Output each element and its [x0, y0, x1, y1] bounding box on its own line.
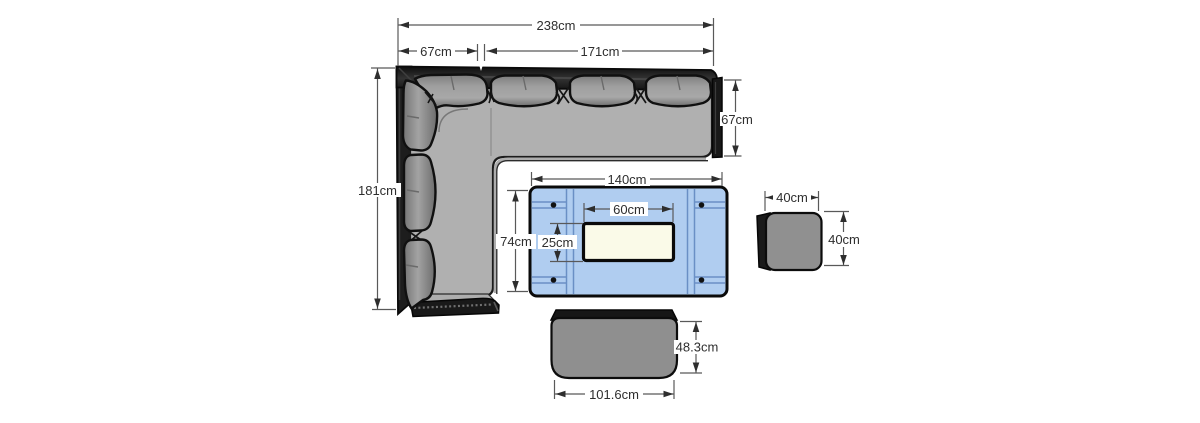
svg-text:25cm: 25cm	[542, 235, 574, 250]
svg-text:101.6cm: 101.6cm	[589, 387, 639, 402]
svg-text:40cm: 40cm	[776, 190, 808, 205]
svg-text:140cm: 140cm	[607, 172, 646, 187]
svg-text:60cm: 60cm	[613, 202, 645, 217]
svg-text:171cm: 171cm	[580, 44, 619, 59]
svg-text:48.3cm: 48.3cm	[676, 340, 719, 355]
svg-text:238cm: 238cm	[536, 18, 575, 33]
svg-text:67cm: 67cm	[721, 112, 753, 127]
svg-text:67cm: 67cm	[420, 44, 452, 59]
svg-text:74cm: 74cm	[500, 234, 532, 249]
svg-text:181cm: 181cm	[358, 183, 397, 198]
svg-text:40cm: 40cm	[828, 232, 860, 247]
